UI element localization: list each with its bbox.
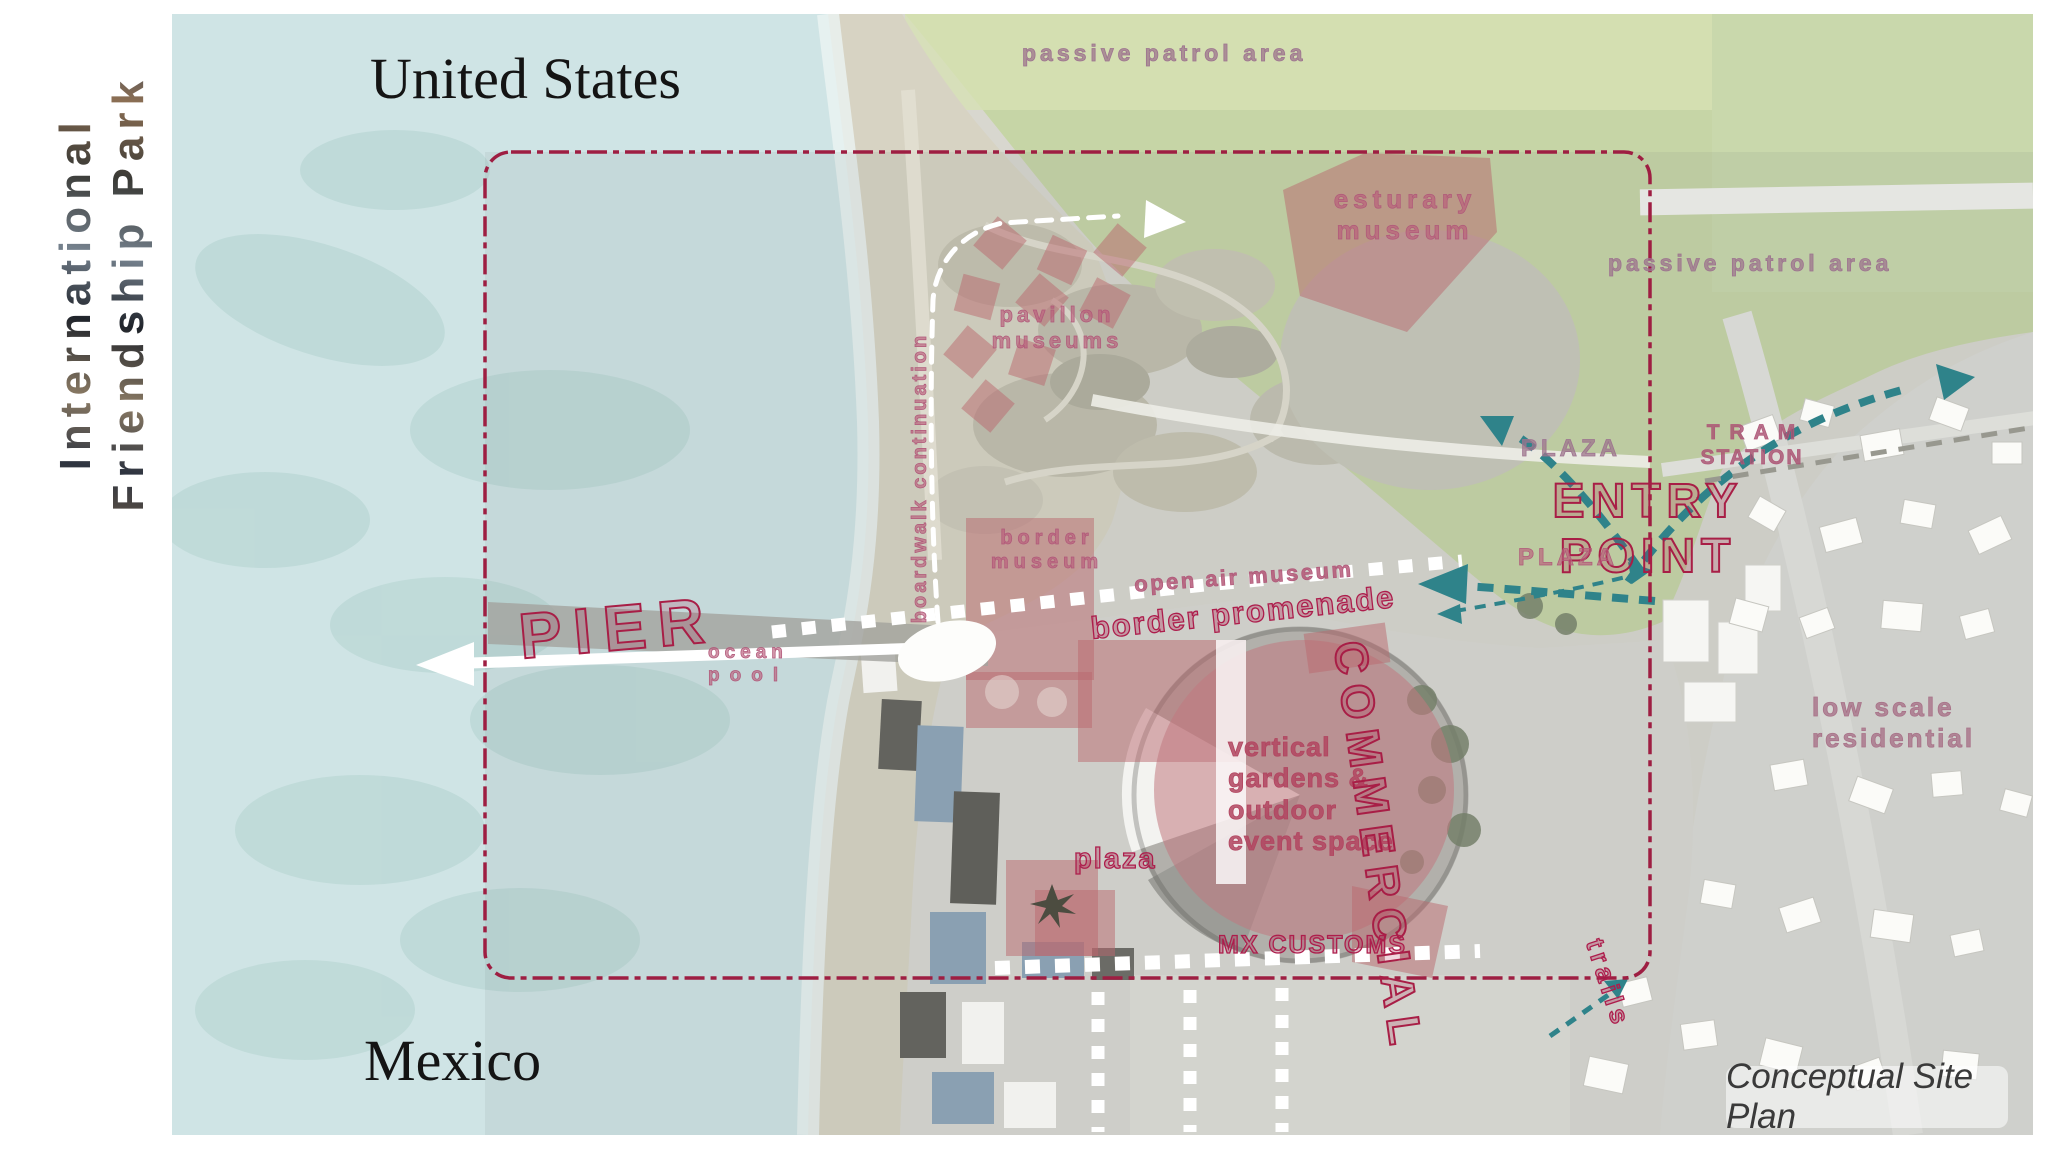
tram-station-line2: STATION (1700, 446, 1803, 469)
ocean-pool-line1: ocean (708, 642, 788, 663)
pavilion-museums-label: pavillon museums (972, 302, 1142, 355)
low-scale-residential-label: low scale residential (1812, 692, 1975, 754)
united-states-label: United States (370, 44, 681, 114)
estuary-museum-line2: museum (1337, 215, 1474, 245)
estuary-museum-line1: esturary (1334, 184, 1477, 214)
entry-point-line1: ENTRY (1553, 475, 1744, 528)
page-title-line2: Friendship Park (104, 74, 153, 512)
collage-circle-2 (1037, 687, 1067, 717)
mx-customs-label: MX CUSTOMS (1218, 930, 1407, 960)
site-plan-map: United States Mexico passive patrol area… (172, 14, 2033, 1135)
pavilion-museums-line2: museums (992, 328, 1123, 353)
border-museum-collage (966, 672, 1092, 728)
passive-patrol-label-1: passive patrol area (1022, 40, 1306, 68)
mexico-label: Mexico (364, 1026, 541, 1096)
boardwalk-continuation-label: boardwalk continuation (908, 318, 932, 638)
estuary-museum-label: esturary museum (1290, 184, 1520, 246)
vertical-gardens-line3: outdoor (1228, 795, 1337, 825)
caption-box: Conceptual Site Plan (1726, 1066, 2008, 1128)
page-title-line1: International (51, 115, 100, 470)
plaza-small-label: plaza (1074, 842, 1157, 877)
low-scale-line1: low scale (1812, 692, 1955, 722)
collage-circle-1 (985, 675, 1019, 709)
border-museum-line2: museum (991, 551, 1103, 573)
ocean-pool-line2: pool (708, 665, 788, 686)
plaza-lower-label: PLAZA (1518, 544, 1618, 573)
passive-patrol-label-2: passive patrol area (1608, 250, 1892, 278)
border-museum-label: border museum (982, 526, 1112, 574)
tram-station-line1: T R A M (1707, 421, 1798, 444)
border-museum-line1: border (1000, 527, 1093, 549)
caption-text: Conceptual Site Plan (1726, 1057, 2008, 1135)
low-scale-line2: residential (1812, 723, 1975, 753)
conceptual-site-plan-page: InternationalFriendship Park (0, 0, 2048, 1151)
plaza-upper-label: PLAZA (1521, 435, 1621, 464)
tram-station-label: T R A M STATION (1677, 420, 1827, 470)
vertical-gardens-line1: vertical (1228, 732, 1331, 762)
page-title: InternationalFriendship Park (50, 58, 156, 528)
pavilion-museums-line1: pavillon (999, 302, 1114, 327)
ocean-pool-label: ocean pool (708, 642, 788, 688)
